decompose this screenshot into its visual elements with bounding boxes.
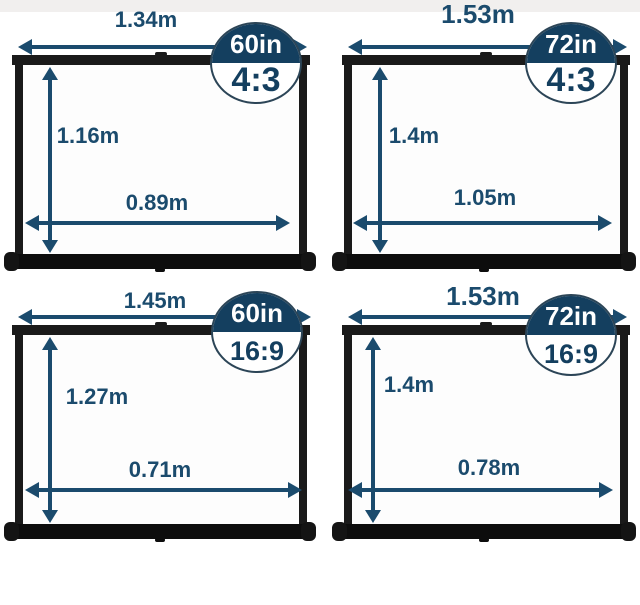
diagonal-size-label: 60in: [212, 24, 300, 63]
viewing-width-label: 0.71m: [129, 458, 191, 482]
diagonal-size-label: 60in: [213, 293, 301, 332]
diagonal-size-label: 72in: [527, 24, 615, 63]
screen-height-arrow: [378, 80, 382, 240]
screen-housing-tube: [8, 524, 312, 539]
panel-60in-16-9: 1.45m 1.27m 0.71m 60in 16:9: [0, 270, 320, 560]
tube-nub: [155, 538, 165, 542]
tube-nub: [155, 268, 165, 272]
diagonal-size-label: 72in: [527, 296, 615, 335]
screen-housing-tube: [336, 524, 632, 539]
viewing-width-arrow: [362, 488, 599, 492]
screen-housing-tube: [8, 254, 312, 269]
screen-height-label: 1.4m: [389, 124, 439, 148]
viewing-width-arrow: [367, 221, 598, 225]
panel-72in-16-9: 1.53m 1.4m 0.78m 72in 16:9: [320, 270, 640, 560]
size-ratio-badge: 60in 4:3: [210, 22, 302, 104]
viewing-width-label: 0.78m: [458, 456, 520, 480]
viewing-width-arrow: [39, 488, 288, 492]
size-ratio-badge: 72in 16:9: [525, 294, 617, 376]
panel-60in-4-3: 1.34m 1.16m 0.89m 60in 4:3: [0, 0, 320, 290]
viewing-width-label: 1.05m: [454, 186, 516, 210]
panel-72in-4-3: 1.53m 1.4m 1.05m 72in 4:3: [320, 0, 640, 290]
tube-nub: [479, 268, 489, 272]
screen-height-arrow: [48, 350, 52, 510]
screen-height-label: 1.16m: [57, 124, 119, 148]
total-width-label: 1.53m: [446, 282, 520, 311]
screen-height-arrow: [48, 80, 52, 240]
screen-size-infographic: 1.34m 1.16m 0.89m 60in 4:3 1.53m 1.4m 1.…: [0, 0, 640, 605]
viewing-width-label: 0.89m: [126, 191, 188, 215]
screen-height-label: 1.27m: [66, 385, 128, 409]
total-width-label: 1.45m: [124, 289, 186, 313]
tube-nub: [479, 538, 489, 542]
size-ratio-badge: 60in 16:9: [211, 291, 303, 373]
screen-housing-tube: [336, 254, 632, 269]
size-ratio-badge: 72in 4:3: [525, 22, 617, 104]
total-width-label: 1.34m: [115, 8, 177, 32]
viewing-width-arrow: [39, 221, 276, 225]
total-width-label: 1.53m: [441, 0, 515, 29]
screen-height-arrow: [371, 350, 375, 510]
screen-height-label: 1.4m: [384, 373, 434, 397]
